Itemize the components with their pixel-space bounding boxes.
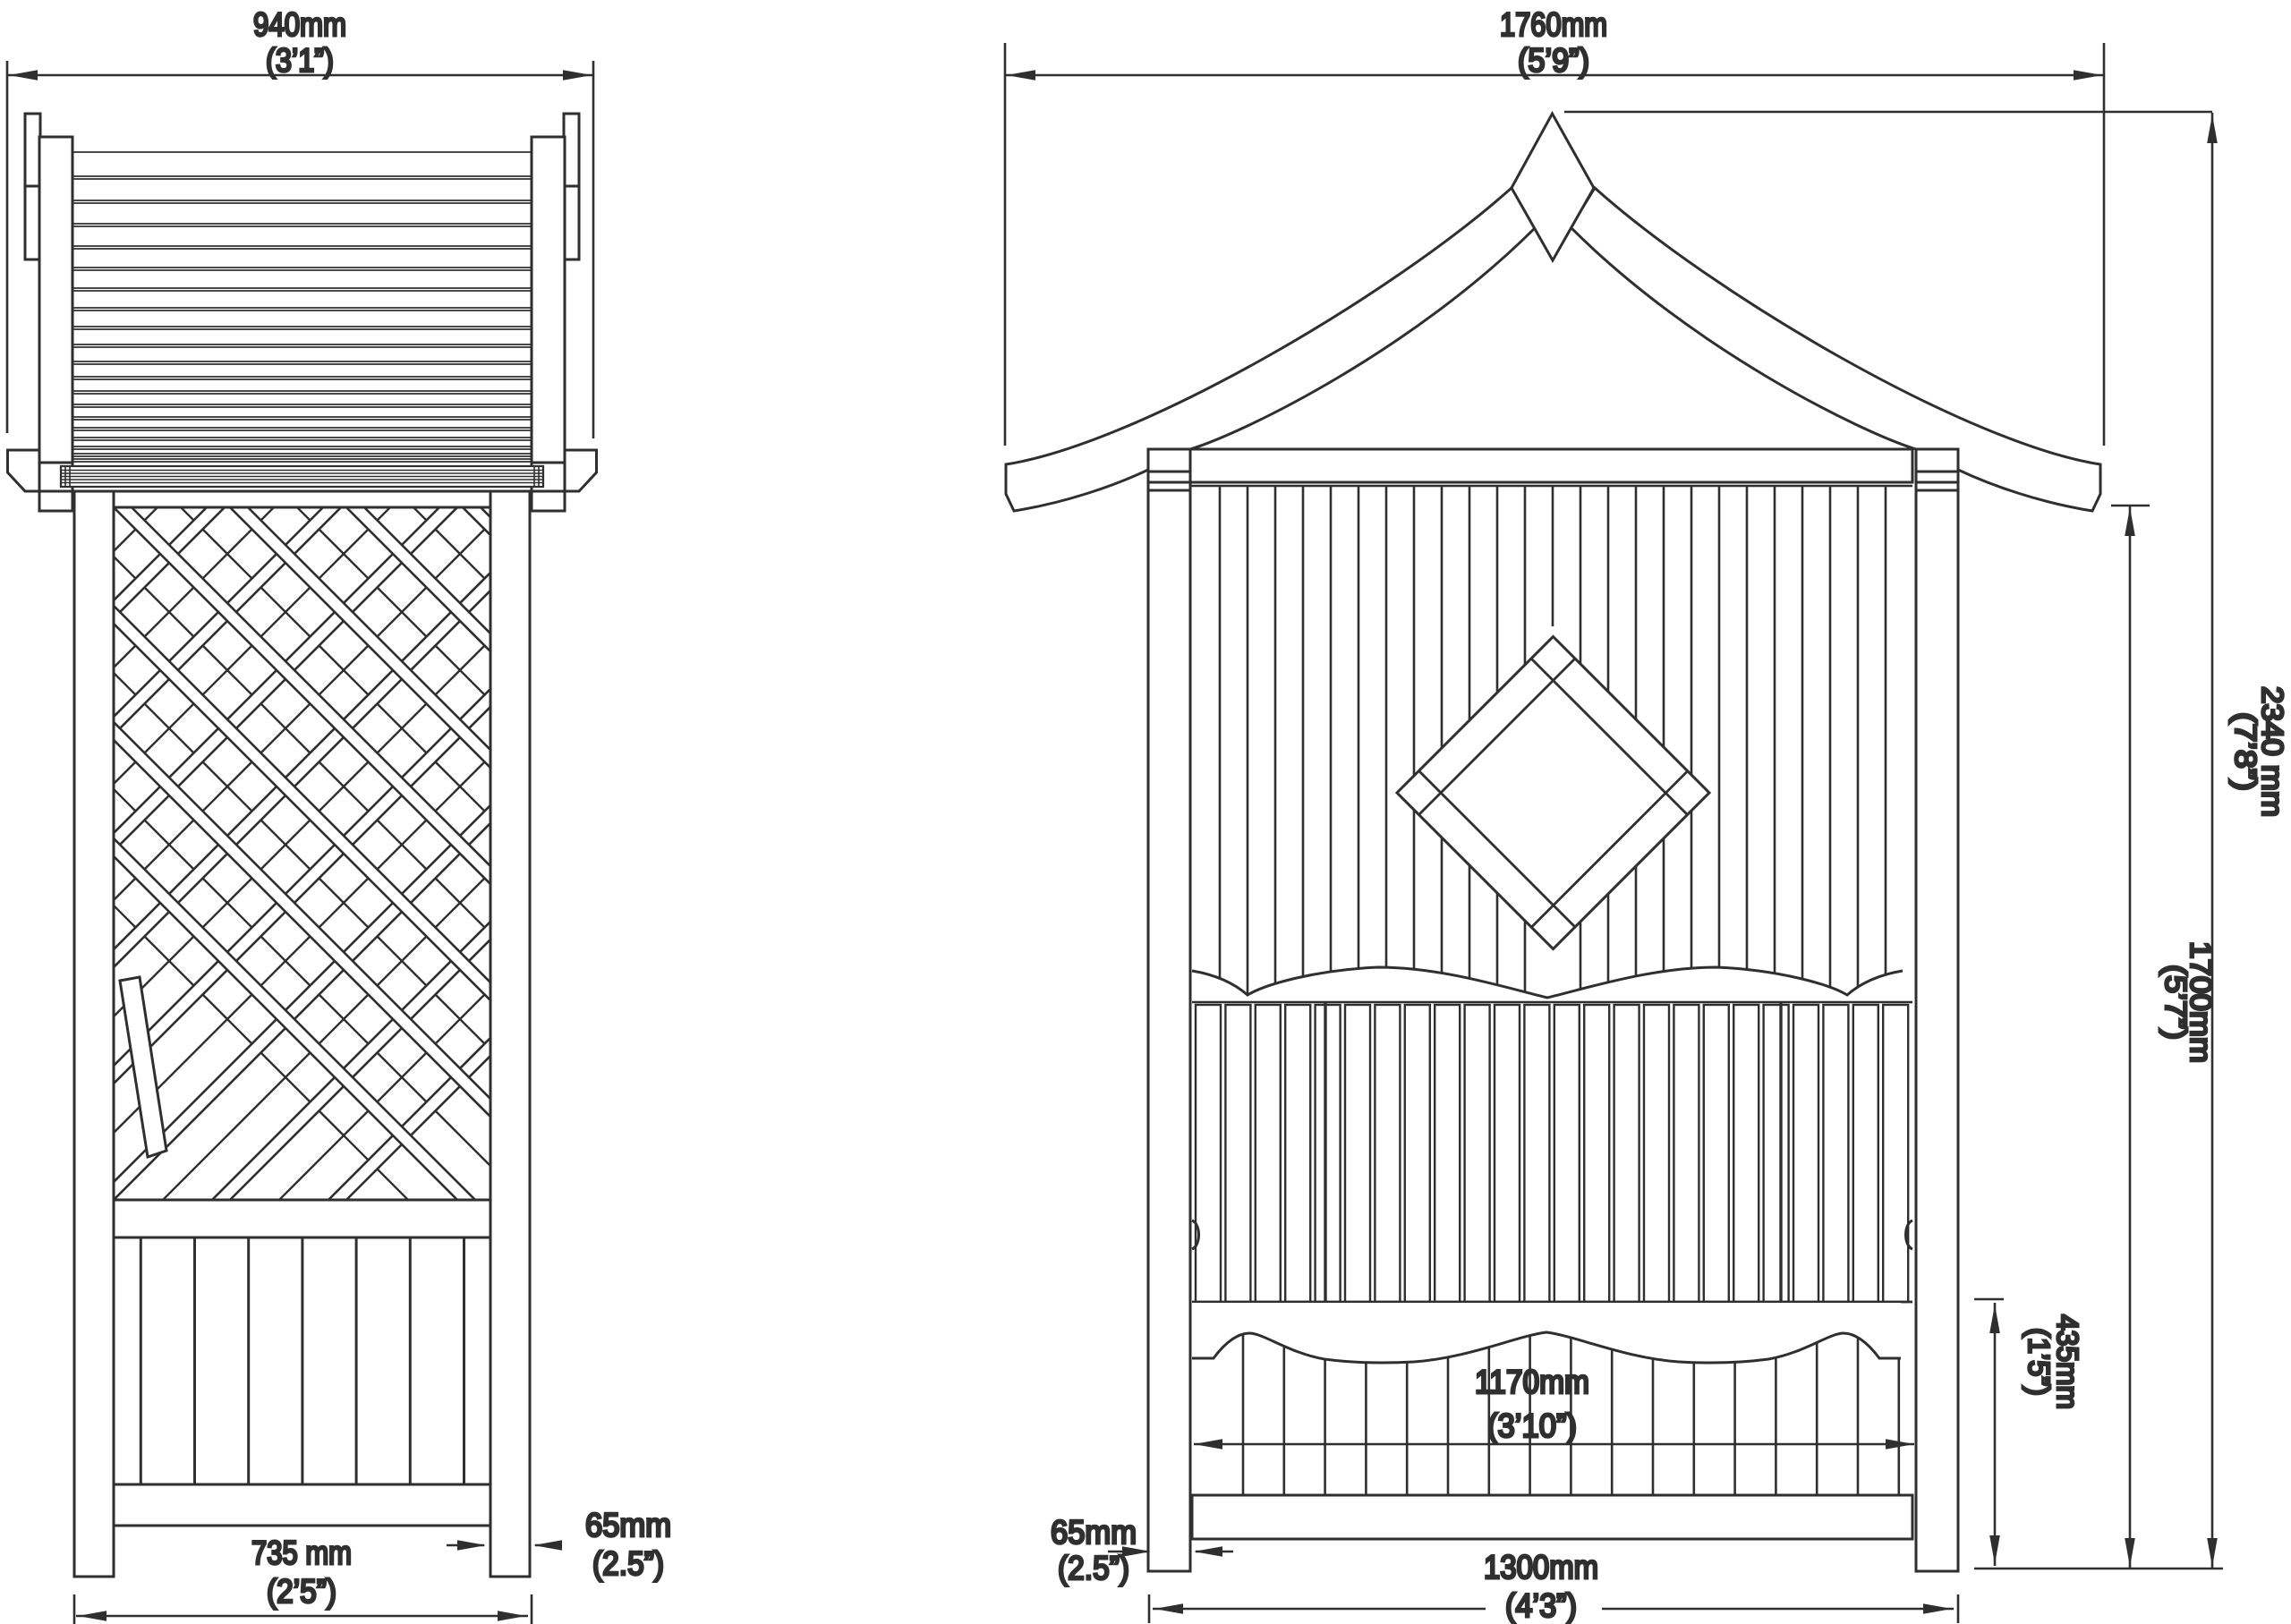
svg-text:(4’3”): (4’3”)	[1505, 1587, 1577, 1624]
svg-text:(7’8”): (7’8”)	[2229, 712, 2262, 791]
svg-text:(5’7”): (5’7”)	[2159, 965, 2193, 1040]
svg-text:735 mm: 735 mm	[251, 1535, 352, 1571]
svg-text:(1’5”): (1’5”)	[2023, 1328, 2056, 1396]
svg-text:(3’10”): (3’10”)	[1487, 1407, 1577, 1444]
svg-text:1760mm: 1760mm	[1500, 6, 1607, 43]
svg-text:940mm: 940mm	[253, 6, 346, 43]
svg-text:(5’9”): (5’9”)	[1518, 42, 1589, 79]
svg-text:65mm: 65mm	[1051, 1514, 1137, 1551]
svg-text:(2.5”): (2.5”)	[1058, 1550, 1129, 1586]
svg-text:(3’1”): (3’1”)	[266, 42, 334, 79]
svg-text:1170mm: 1170mm	[1475, 1364, 1589, 1400]
svg-text:(2.5”): (2.5”)	[592, 1545, 664, 1582]
svg-text:1300mm: 1300mm	[1484, 1549, 1598, 1586]
svg-text:(2’5”): (2’5”)	[267, 1573, 336, 1610]
svg-text:65mm: 65mm	[585, 1507, 671, 1543]
